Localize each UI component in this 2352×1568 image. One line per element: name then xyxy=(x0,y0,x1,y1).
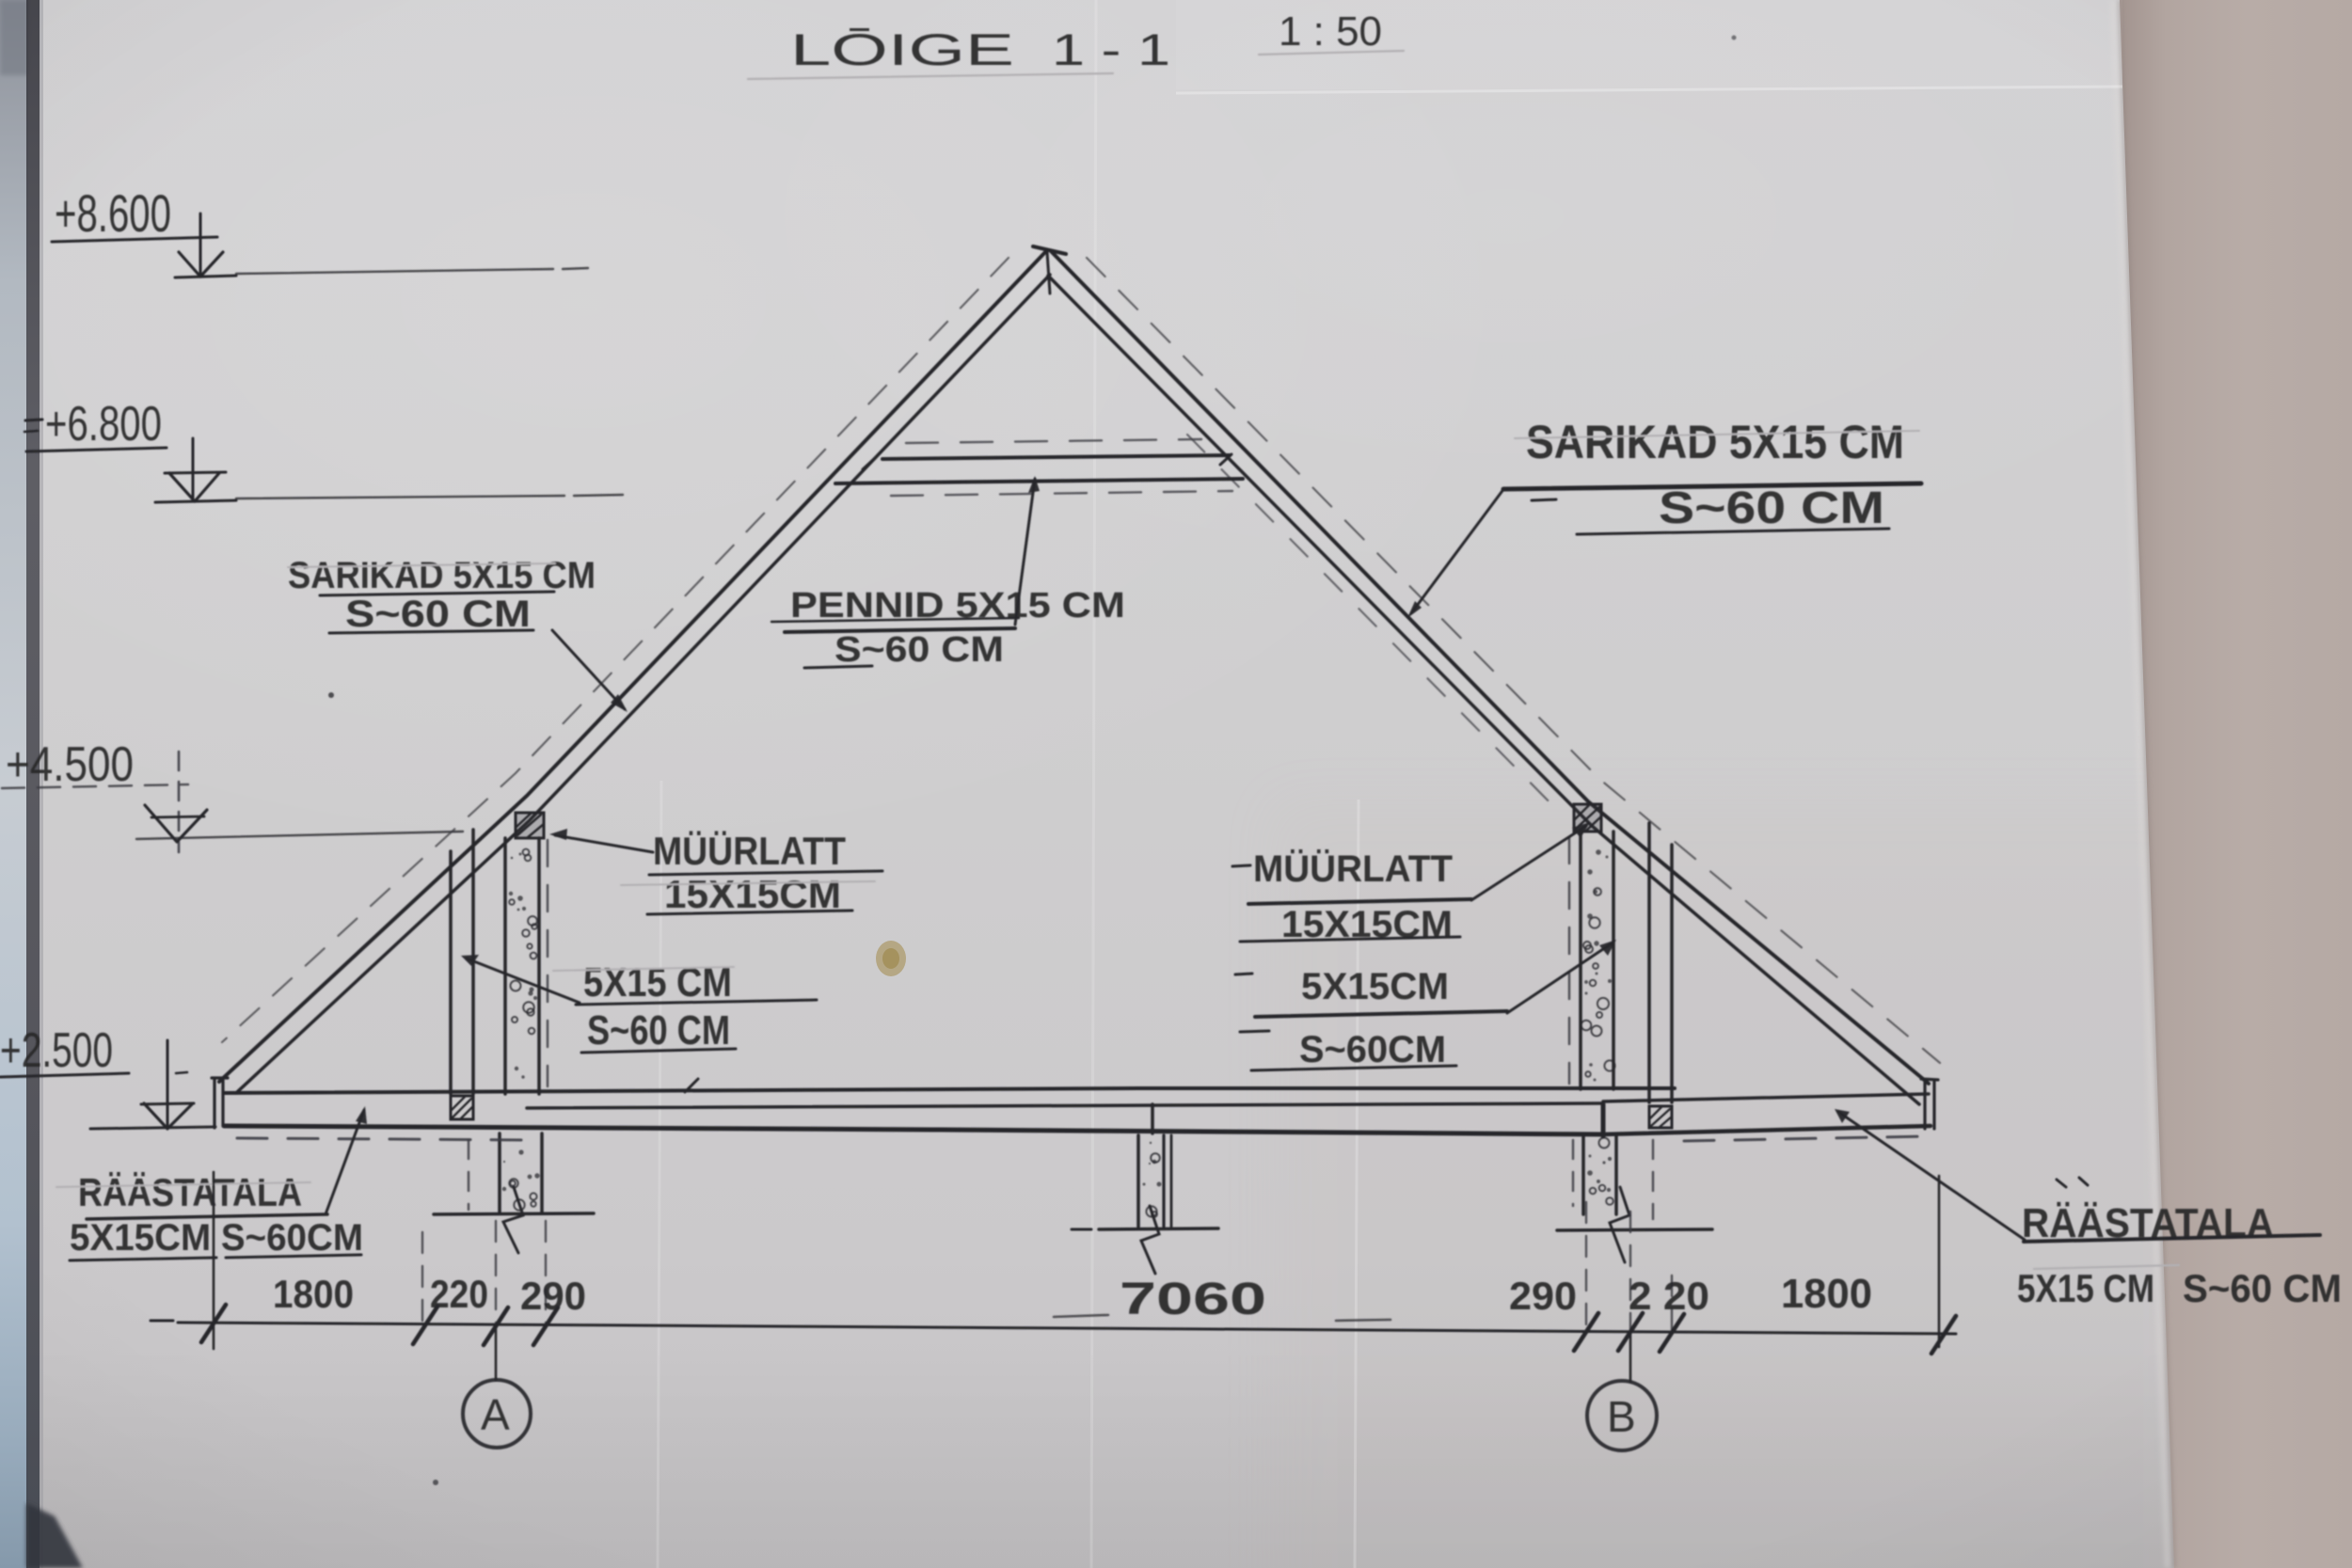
svg-text:S~60CM: S~60CM xyxy=(1299,1029,1446,1070)
svg-text:5X15 CM: 5X15 CM xyxy=(2017,1266,2154,1310)
svg-text:+4.500: +4.500 xyxy=(6,737,134,792)
svg-text:SARIKAD 5X15 CM: SARIKAD 5X15 CM xyxy=(1526,416,1904,468)
svg-text:LŌIGE: LŌIGE xyxy=(790,24,1014,74)
svg-text:2 20: 2 20 xyxy=(1629,1274,1709,1318)
svg-text:290: 290 xyxy=(520,1274,586,1318)
svg-text:7060: 7060 xyxy=(1120,1275,1266,1324)
svg-text:+2.500: +2.500 xyxy=(0,1023,113,1078)
svg-text:MÜÜRLATT: MÜÜRLATT xyxy=(653,829,846,873)
svg-text:15X15CM: 15X15CM xyxy=(664,872,841,916)
svg-text:S~60 CM: S~60 CM xyxy=(345,594,531,635)
svg-text:B: B xyxy=(1607,1392,1636,1441)
svg-text:1 : 50: 1 : 50 xyxy=(1279,8,1382,55)
svg-text:SARIKAD 5X15 CM: SARIKAD 5X15 CM xyxy=(288,555,596,596)
svg-text:290: 290 xyxy=(1509,1274,1577,1318)
svg-text:5X15 CM: 5X15 CM xyxy=(583,959,732,1006)
svg-text:S~60 CM: S~60 CM xyxy=(1659,483,1884,533)
svg-text:+8.600: +8.600 xyxy=(55,183,171,243)
svg-text:1 - 1: 1 - 1 xyxy=(1052,24,1170,74)
svg-text:5X15CM S~60CM: 5X15CM S~60CM xyxy=(70,1217,363,1259)
svg-text:RÄÄSTATALA: RÄÄSTATALA xyxy=(78,1170,302,1214)
svg-text:5X15CM: 5X15CM xyxy=(1301,966,1449,1007)
svg-text:S~60 CM: S~60 CM xyxy=(2183,1266,2342,1310)
svg-text:S~60 CM: S~60 CM xyxy=(834,630,1004,670)
svg-text:S~60 CM: S~60 CM xyxy=(587,1007,730,1053)
svg-text:A: A xyxy=(481,1390,510,1439)
svg-text:1800: 1800 xyxy=(273,1272,354,1316)
svg-text:1800: 1800 xyxy=(1781,1271,1872,1317)
svg-text:220: 220 xyxy=(430,1272,488,1316)
svg-text:MÜÜRLATT: MÜÜRLATT xyxy=(1253,847,1453,890)
svg-text:+6.800: +6.800 xyxy=(45,397,162,451)
